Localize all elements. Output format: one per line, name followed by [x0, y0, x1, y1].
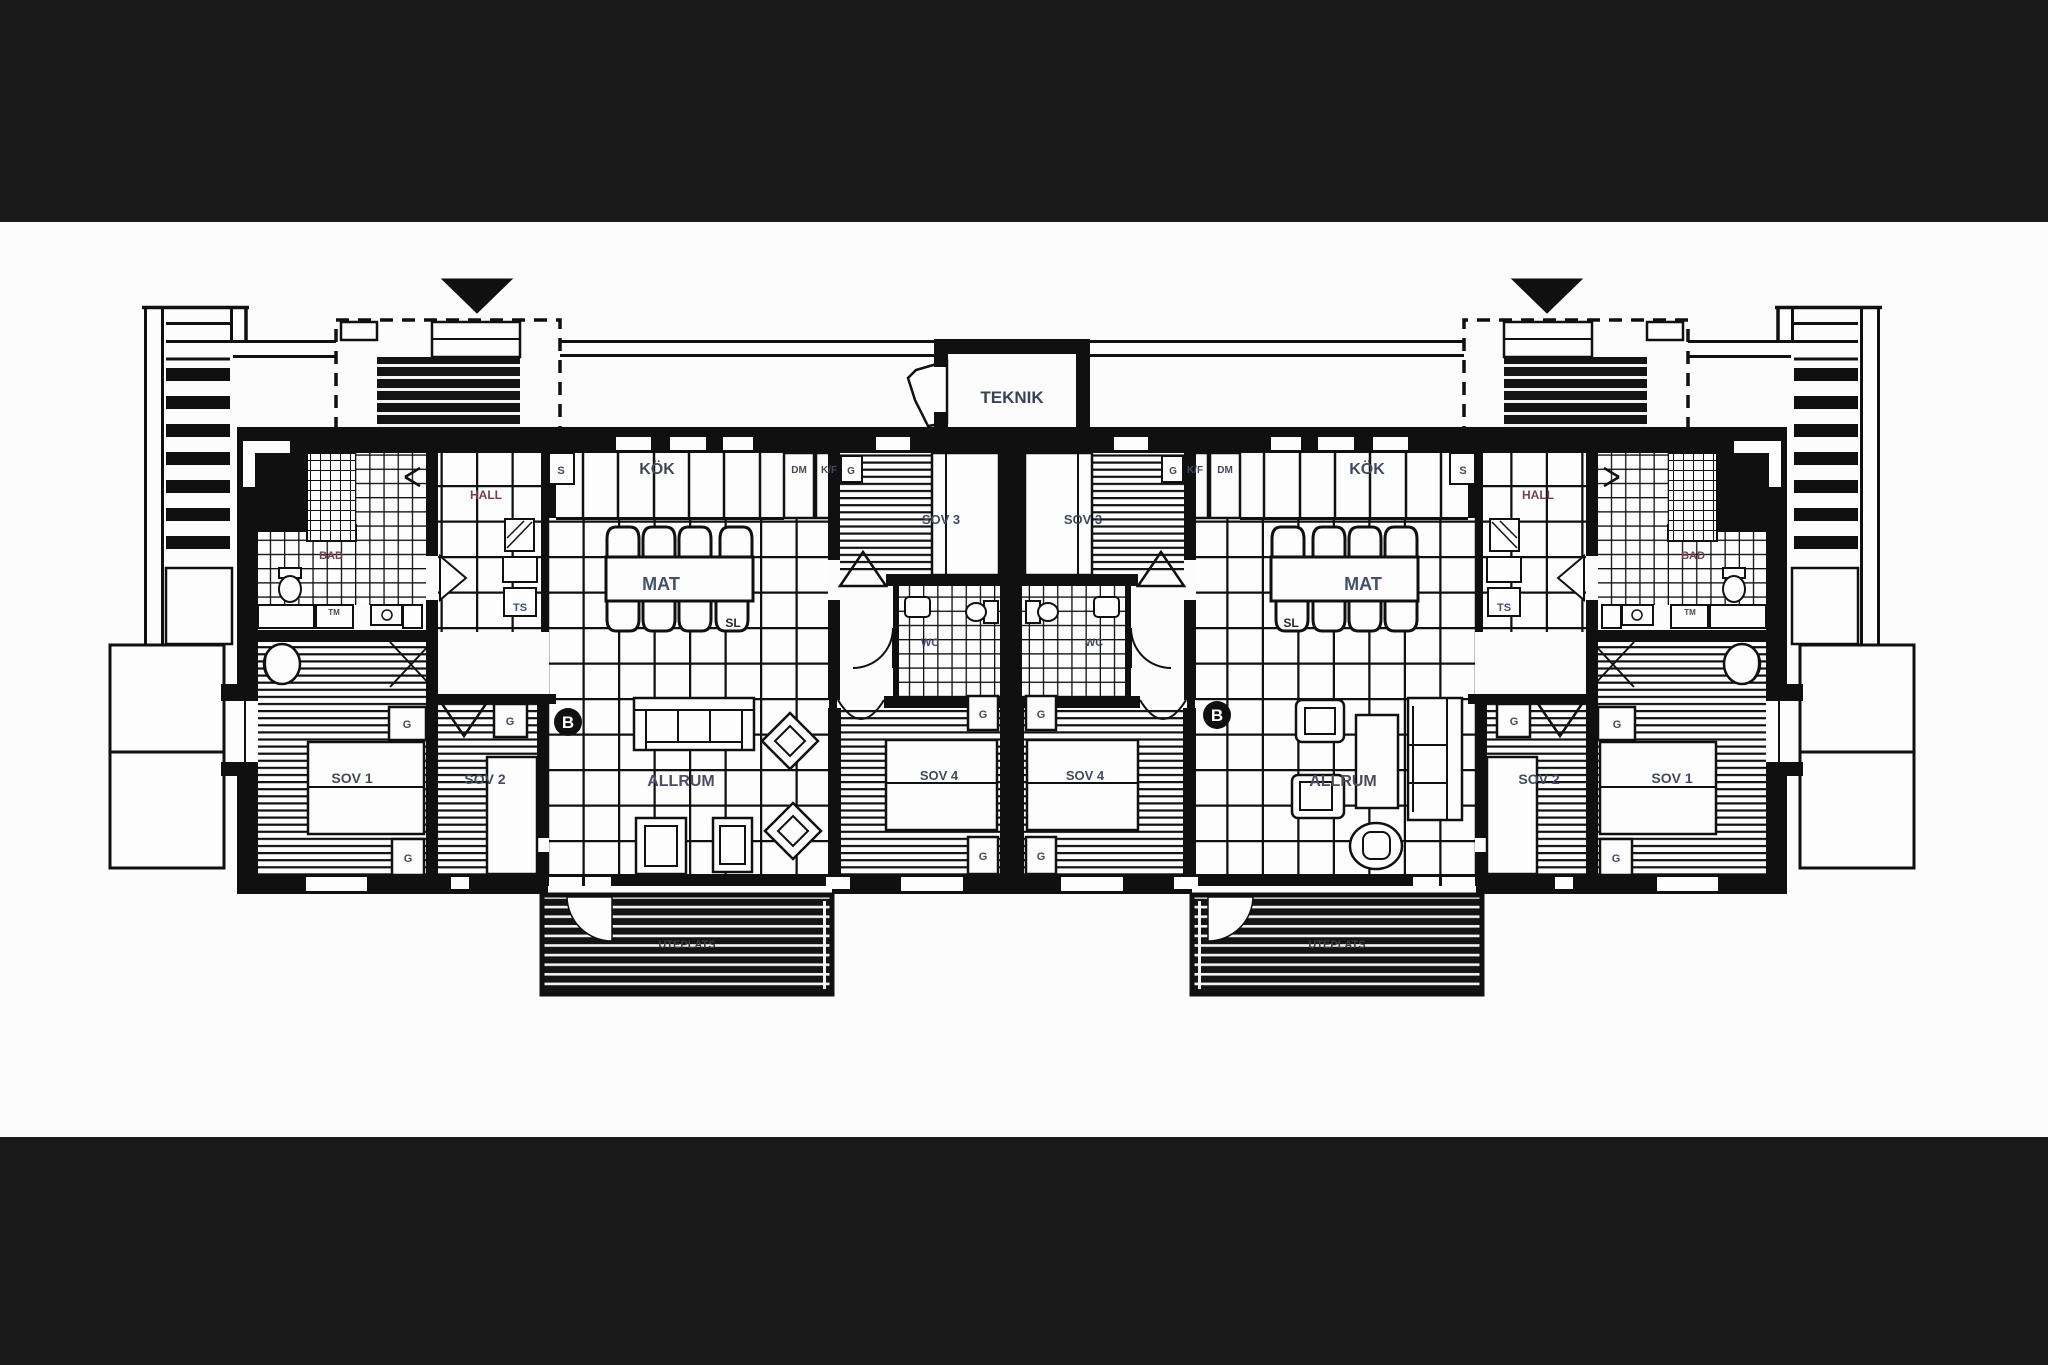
- svg-text:KÖK: KÖK: [1349, 459, 1385, 478]
- svg-text:G: G: [1169, 466, 1177, 477]
- svg-text:G: G: [1612, 853, 1621, 865]
- svg-text:K/F: K/F: [1187, 465, 1203, 476]
- svg-text:G: G: [979, 709, 988, 721]
- svg-text:G: G: [1037, 851, 1046, 863]
- svg-text:B: B: [1211, 706, 1223, 725]
- svg-text:S: S: [1459, 465, 1466, 477]
- svg-text:SOV 2: SOV 2: [464, 771, 505, 787]
- svg-text:HALL: HALL: [470, 488, 502, 502]
- svg-text:SOV 2: SOV 2: [1518, 771, 1559, 787]
- svg-text:SL: SL: [1283, 616, 1298, 630]
- svg-text:TM: TM: [328, 608, 340, 617]
- svg-text:SOV 3: SOV 3: [922, 512, 960, 527]
- svg-text:ALLRUM: ALLRUM: [1309, 773, 1377, 790]
- svg-text:G: G: [847, 466, 855, 477]
- svg-text:DM: DM: [1217, 465, 1233, 476]
- svg-text:UTEPLATS: UTEPLATS: [1308, 939, 1365, 951]
- svg-text:BAD: BAD: [319, 550, 343, 562]
- svg-text:K/F: K/F: [821, 465, 837, 476]
- svg-text:G: G: [506, 716, 515, 728]
- svg-text:WC: WC: [1085, 637, 1103, 649]
- svg-text:S: S: [557, 465, 564, 477]
- svg-text:ALLRUM: ALLRUM: [647, 773, 715, 790]
- svg-text:MAT: MAT: [642, 574, 680, 594]
- svg-text:SOV 4: SOV 4: [920, 768, 959, 783]
- svg-text:TEKNIK: TEKNIK: [980, 388, 1044, 407]
- svg-text:G: G: [403, 719, 412, 731]
- svg-text:TM: TM: [1684, 608, 1696, 617]
- svg-text:DM: DM: [791, 465, 807, 476]
- svg-text:UTEPLATS: UTEPLATS: [658, 939, 715, 951]
- svg-text:G: G: [979, 851, 988, 863]
- svg-text:B: B: [562, 713, 574, 732]
- svg-text:SOV 4: SOV 4: [1066, 768, 1105, 783]
- svg-text:TS: TS: [513, 602, 527, 614]
- svg-text:SOV 1: SOV 1: [1651, 770, 1692, 786]
- svg-text:KÖK: KÖK: [639, 459, 675, 478]
- svg-text:G: G: [1037, 709, 1046, 721]
- svg-text:BAD: BAD: [1681, 550, 1705, 562]
- svg-text:MAT: MAT: [1344, 574, 1382, 594]
- svg-text:G: G: [404, 853, 413, 865]
- svg-text:SOV 3: SOV 3: [1064, 512, 1102, 527]
- svg-text:HALL: HALL: [1522, 488, 1554, 502]
- svg-text:G: G: [1510, 716, 1519, 728]
- svg-text:TS: TS: [1497, 602, 1511, 614]
- svg-text:SL: SL: [725, 616, 740, 630]
- svg-text:SOV 1: SOV 1: [331, 770, 372, 786]
- svg-text:WC: WC: [921, 637, 939, 649]
- svg-text:G: G: [1613, 719, 1622, 731]
